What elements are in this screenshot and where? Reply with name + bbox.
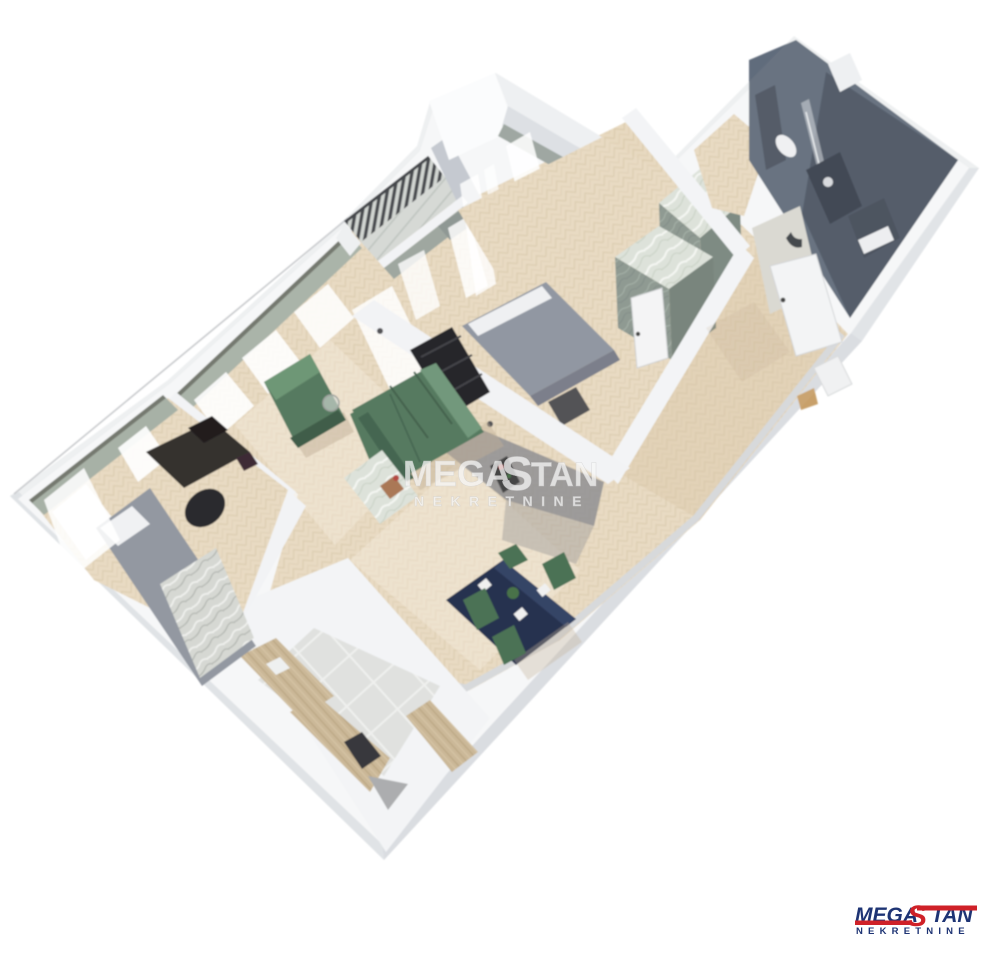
svg-text:NEKRETNINE: NEKRETNINE — [414, 493, 590, 509]
svg-text:TAN: TAN — [531, 456, 598, 494]
svg-text:NEKRETNINE: NEKRETNINE — [856, 926, 970, 937]
svg-text:MEGA: MEGA — [403, 453, 511, 494]
